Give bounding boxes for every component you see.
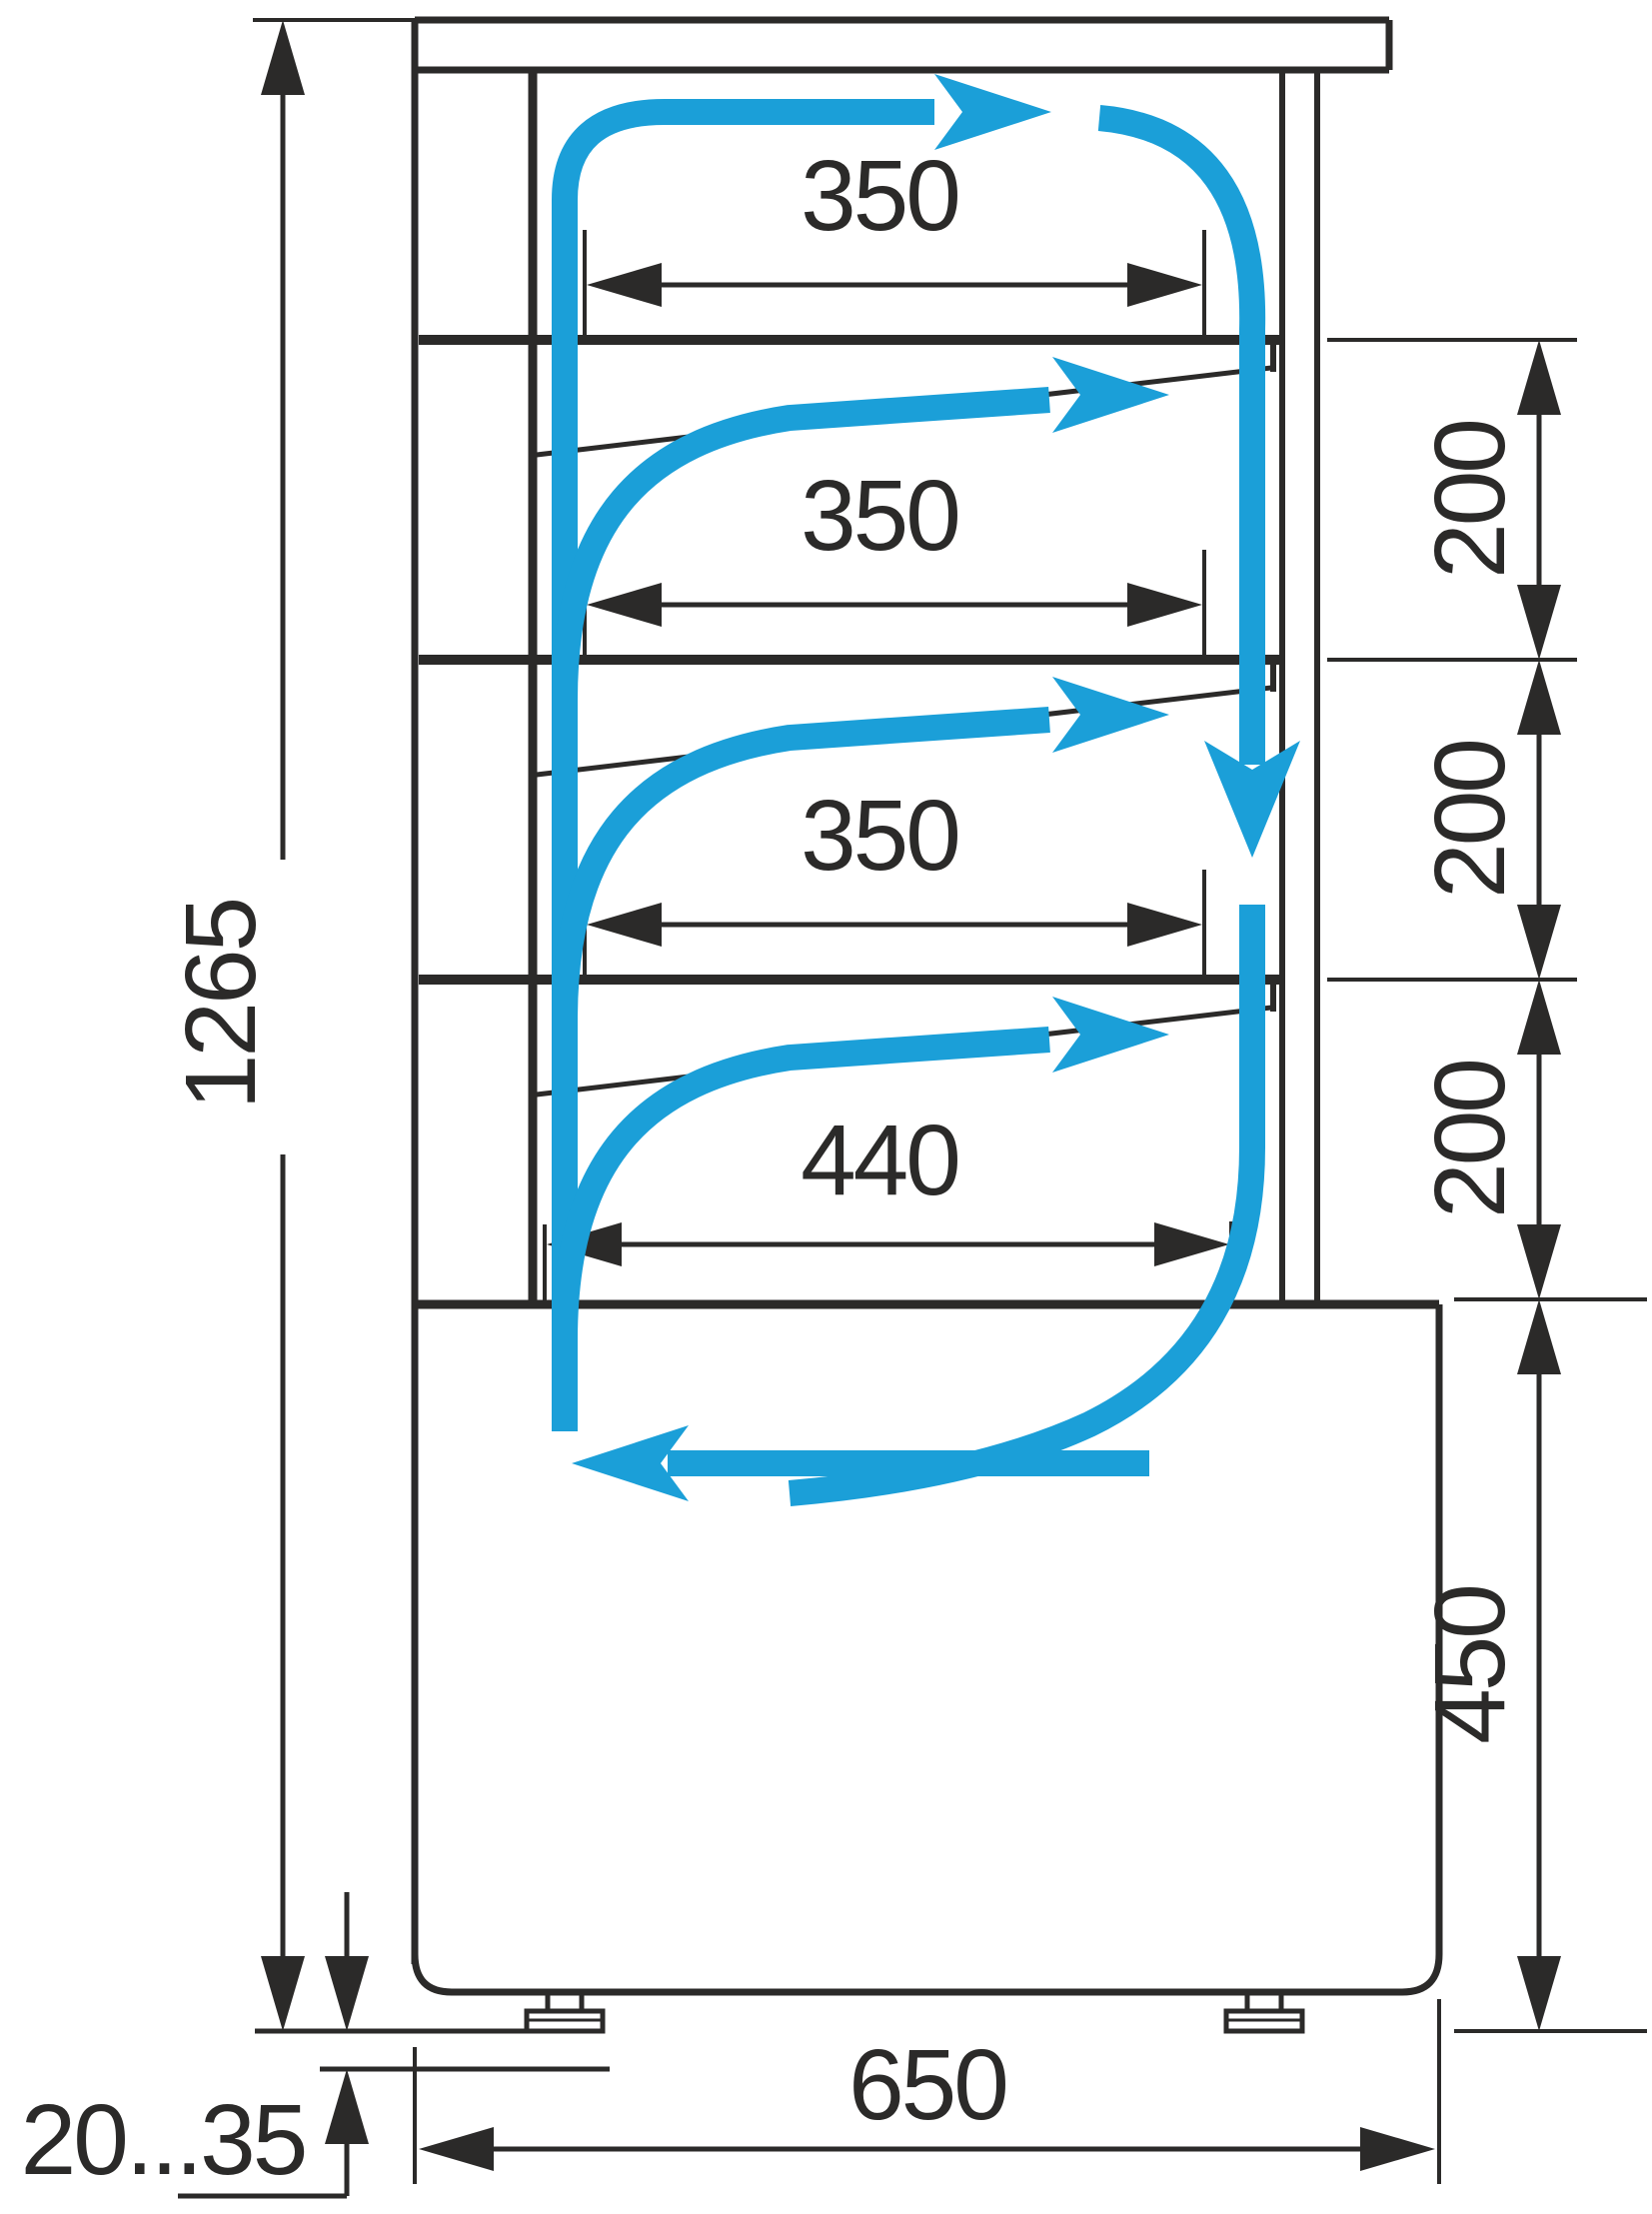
left-foot	[527, 1992, 603, 2031]
dim-shelf-gap-3: 200	[1414, 980, 1561, 1299]
dim-gap-3-label: 200	[1414, 1061, 1526, 1218]
dim-shelf-gap-1: 200	[1414, 340, 1561, 660]
airflow-arrowhead-right-icon	[1052, 357, 1169, 433]
dim-total-height-label: 1265	[165, 900, 277, 1109]
arrowhead-right-icon	[1127, 583, 1202, 627]
dim-shelf-gap-2: 200	[1414, 660, 1561, 980]
arrowhead-down-icon	[1517, 1956, 1561, 2031]
dim-shelf-2-label: 350	[801, 460, 958, 572]
dim-bottom-shelf-label: 440	[801, 1105, 958, 1216]
airflow-arrowhead-right-icon	[1052, 677, 1169, 753]
dim-base-width-label: 650	[848, 2029, 1006, 2141]
arrowhead-down-icon	[325, 1956, 369, 2031]
arrowhead-right-icon	[1127, 263, 1202, 307]
arrowhead-down-icon	[1517, 1224, 1561, 1299]
arrowhead-right-icon	[1127, 903, 1202, 947]
dim-shelf-1-width: 350	[585, 140, 1204, 345]
dim-right-chain: 200 200 200 450	[1327, 340, 1647, 2031]
dim-shelf-1-label: 350	[801, 140, 958, 252]
dim-total-height: 1265	[165, 20, 305, 2031]
airflow-downdraft-upper	[1099, 118, 1252, 765]
arrowhead-up-icon	[1517, 340, 1561, 415]
arrowhead-up-icon	[1517, 980, 1561, 1055]
arrowhead-down-icon	[1517, 585, 1561, 660]
arrowhead-left-icon	[587, 583, 662, 627]
arrowhead-up-icon	[261, 20, 305, 95]
dim-shelf-3-width: 350	[585, 780, 1204, 985]
dim-foot-range: 20...35	[21, 1892, 369, 2196]
arrowhead-left-icon	[419, 2127, 494, 2171]
dim-shelf-3-label: 350	[801, 780, 958, 892]
arrowhead-down-icon	[261, 1956, 305, 2031]
dim-foot-range-label: 20...35	[21, 2084, 306, 2196]
dim-base-height-label: 450	[1414, 1586, 1526, 1744]
arrowhead-right-icon	[1360, 2127, 1435, 2171]
dim-base-width: 650	[415, 1999, 1439, 2184]
arrowhead-up-icon	[1517, 1299, 1561, 1374]
right-foot	[1226, 1992, 1302, 2031]
arrowhead-right-icon	[1154, 1222, 1229, 1266]
dim-gap-1-label: 200	[1414, 421, 1526, 579]
arrowhead-left-icon	[587, 903, 662, 947]
arrowhead-up-icon	[325, 2069, 369, 2144]
drawing-canvas: 1265 350 350 350 440	[0, 0, 1652, 2214]
dim-shelf-2-width: 350	[585, 460, 1204, 665]
arrowhead-left-icon	[587, 263, 662, 307]
arrowhead-down-icon	[1517, 905, 1561, 980]
arrowhead-up-icon	[1517, 660, 1561, 735]
airflow-arrowhead-right-icon	[1052, 997, 1169, 1073]
dim-bottom-shelf-width: 440	[545, 1105, 1231, 1301]
technical-drawing: 1265 350 350 350 440	[0, 0, 1652, 2214]
adjustable-feet	[255, 1992, 1302, 2069]
airflow-arrowhead-right-icon	[934, 74, 1051, 150]
dim-gap-2-label: 200	[1414, 741, 1526, 899]
